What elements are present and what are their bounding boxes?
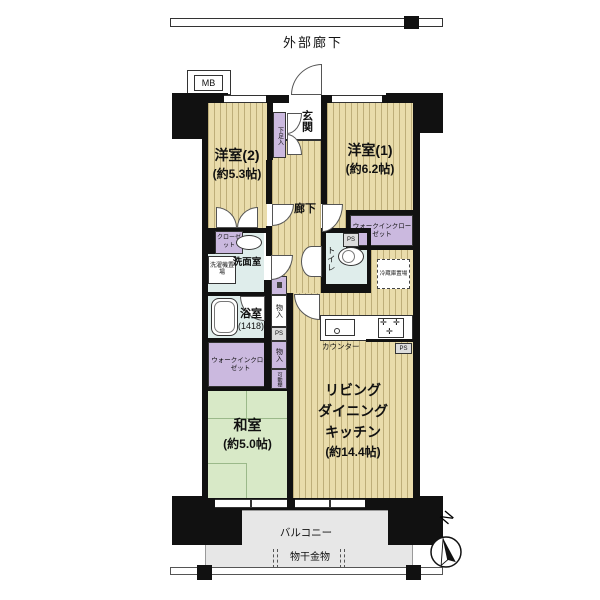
mb-label: MB [194, 75, 223, 91]
ldk-line1: リビング [298, 380, 408, 401]
ps-c: PS [395, 343, 412, 354]
ldk-size: (約14.4帖) [298, 443, 408, 461]
entrance-gap [289, 95, 322, 103]
wic1-label: ウォークインクローゼット [352, 218, 412, 244]
small-cabinet-icon [277, 282, 282, 288]
counter-label: カウンター [322, 343, 368, 352]
washroom-label: 洗面室 [228, 258, 266, 269]
hallway-label: 廊下 [288, 203, 322, 216]
bath-size: (1418) [236, 321, 266, 331]
compass-icon: N [424, 506, 470, 576]
north-label: N [437, 508, 457, 528]
wall-closet-end [202, 228, 215, 254]
room2-name: 洋室(2) [206, 145, 268, 165]
room2-label: 洋室(2) (約5.3帖) [206, 145, 268, 182]
rail-post-right [406, 565, 421, 580]
washitsu-name: 和室 [208, 415, 287, 435]
wall-room1-wic1 [346, 210, 413, 215]
room1-size: (約6.2帖) [327, 160, 413, 177]
drying-bracket [340, 549, 345, 568]
burner-icon: ✛ [380, 318, 387, 327]
bathtub-inner [214, 301, 235, 333]
toilet-inner [342, 250, 355, 263]
window-mullion [329, 499, 331, 508]
sink-icon [236, 235, 262, 250]
toilet-door-arc [301, 246, 322, 277]
rail-post-left [197, 565, 212, 580]
window-mullion [250, 499, 252, 508]
wall-toilet-bottom [321, 284, 371, 293]
movable-shelf: 可動棚 [271, 369, 287, 389]
ldk-label: リビング ダイニング キッチン (約14.4帖) [298, 380, 408, 461]
storage-a: 物入 [271, 295, 287, 327]
bath-label: 浴室 (1418) [236, 305, 266, 331]
washitsu-label: 和室 (約5.0帖) [208, 415, 287, 452]
room1-label: 洋室(1) (約6.2帖) [327, 140, 413, 177]
genkan-label: 玄関 [299, 104, 313, 138]
storage-b: 物入 [271, 341, 287, 369]
drying-label: 物干金物 [281, 552, 339, 564]
bath-name: 浴室 [236, 305, 266, 321]
balcony-label: バルコニー [275, 527, 337, 539]
toilet-label: トイレ [325, 238, 337, 280]
shoe-cabinet-label: 下足入 [273, 114, 286, 158]
room2-window [224, 95, 266, 103]
counter-edge [366, 339, 413, 342]
exterior-corridor-bar [170, 18, 443, 27]
room1-name: 洋室(1) [327, 140, 413, 160]
drain-icon [334, 328, 340, 334]
bar-marker [404, 16, 419, 29]
wall-bath-wic2 [208, 338, 268, 342]
wall-washitsu-ldk [287, 293, 293, 498]
exterior-corridor-label: 外部廊下 [258, 36, 368, 51]
drying-bracket [273, 549, 278, 568]
ldk-line2: ダイニング [298, 401, 408, 422]
floor-plan: 外部廊下 MB [0, 0, 600, 600]
entrance-door-arc [291, 64, 322, 95]
burner-icon: ✛ [386, 327, 393, 336]
room2-size: (約5.3帖) [206, 165, 268, 182]
room1-window [332, 95, 382, 103]
tatami-line [208, 463, 247, 464]
wall-right [413, 95, 420, 508]
burner-icon: ✛ [393, 318, 400, 327]
ps-a: PS [271, 327, 287, 341]
washitsu-size: (約5.0帖) [208, 435, 287, 452]
tatami-line [246, 463, 247, 498]
wall-hall-left-b [266, 226, 272, 256]
ldk-line3: キッチン [298, 422, 408, 443]
kitchen-sink-icon [325, 319, 355, 336]
wic2-label: ウォークインクローゼット [210, 353, 271, 377]
refrigerator-box: 冷蔵庫置場 [377, 259, 410, 289]
tatami-line [246, 391, 247, 418]
